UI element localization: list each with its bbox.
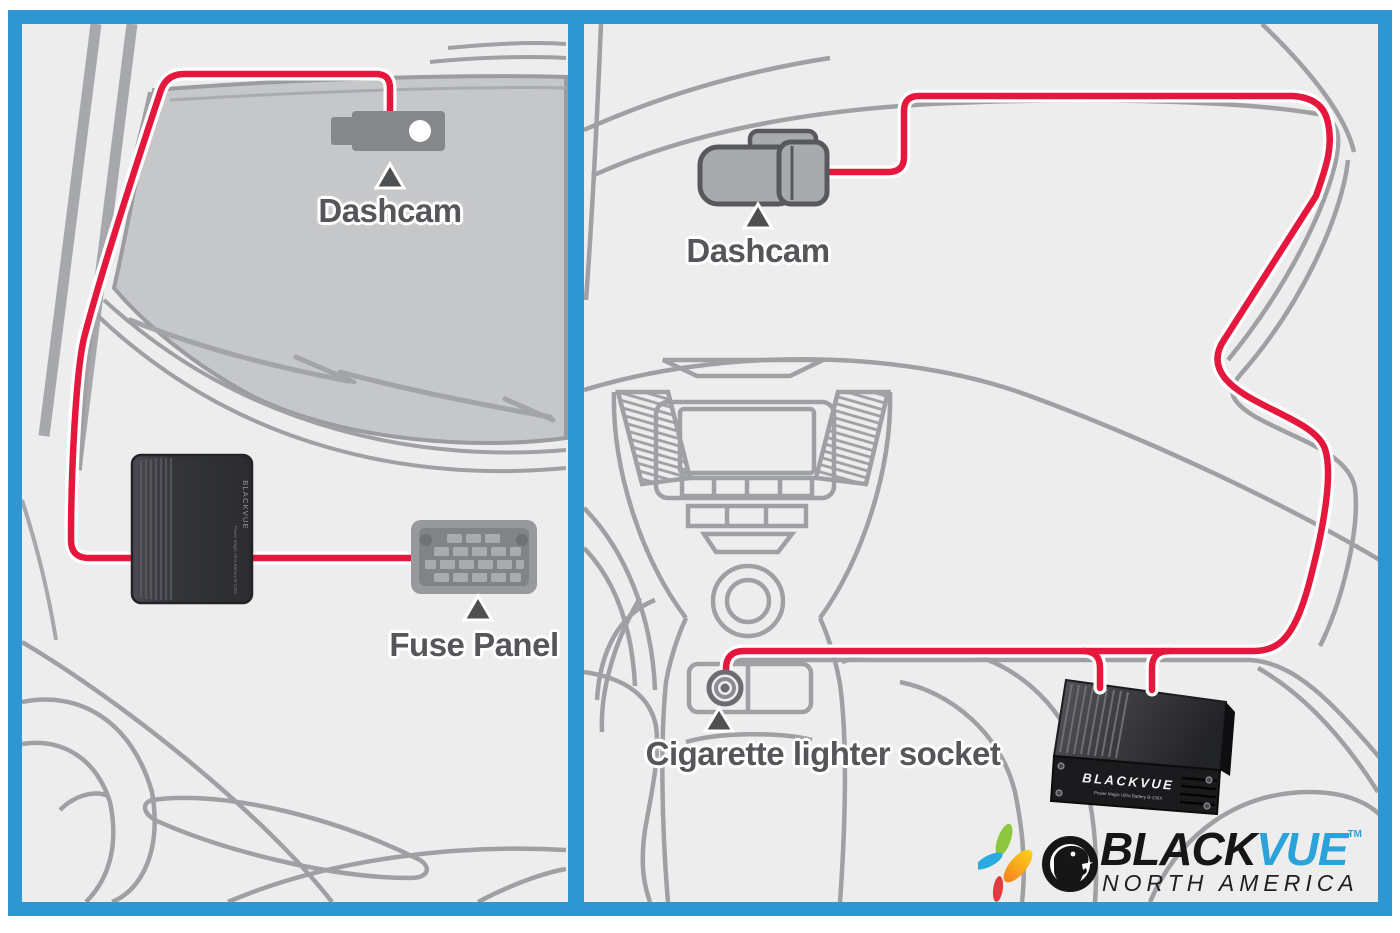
logo-trademark: TM: [1348, 829, 1362, 840]
left-panel-artwork: BLACKVUE Power Magic Ultra Battery B-130…: [22, 24, 566, 902]
diagram-artwork: BLACKVUE Power Magic Ultra Battery B-130…: [0, 0, 1400, 933]
button-tray: [704, 534, 792, 552]
logo-emblem: [978, 820, 1098, 902]
pointer-triangle-fuse-panel: [464, 596, 492, 620]
fuse-screw: [516, 534, 528, 546]
door-armrest-line: [1258, 668, 1378, 792]
logo-wordmark: BLACKVUETM: [1100, 826, 1362, 872]
logo-black: BLACK: [1100, 823, 1256, 875]
battery-side-model: Power Magic Ultra Battery B-130X: [233, 526, 238, 595]
cigarette-lighter-socket-label: Cigarette lighter socket: [646, 735, 1001, 773]
dash-top: [584, 359, 1383, 562]
air-vent-right: [816, 392, 888, 484]
battery-pack-right: BLACKVUE Power Magic Ultra Battery B-130…: [1051, 680, 1235, 814]
battery-ridges: [141, 458, 171, 600]
pointer-triangle-dashcam-right: [744, 204, 772, 228]
fuse-panel: [411, 520, 537, 594]
battery-side-brand: BLACKVUE: [241, 480, 250, 530]
control-knob-inner: [727, 580, 769, 622]
fuse-screw: [420, 534, 432, 546]
fuse-panel-label: Fuse Panel: [389, 626, 558, 664]
cigarette-lighter-socket: [709, 672, 741, 704]
headliner-sketch: [584, 24, 1356, 646]
eagle-emblem: [1046, 840, 1094, 888]
steering-rim: [584, 508, 655, 690]
dashcam-lens-unit: [779, 142, 827, 204]
logo-vue: VUE: [1256, 823, 1348, 875]
driver-seat: [584, 672, 657, 902]
screen: [680, 409, 814, 473]
logo-leaves: [978, 822, 1037, 902]
hood-sketch: [22, 642, 566, 902]
headlight: [145, 798, 427, 878]
hood-front-edge: [478, 869, 566, 902]
fender-line: [22, 500, 56, 640]
eagle-eye: [1071, 852, 1076, 857]
left-pillar-line: [586, 24, 601, 300]
roof-corner-line: [1262, 24, 1354, 152]
blackvue-north-america-logo: BLACKVUETM NORTH AMERICA: [978, 820, 1378, 902]
leaf-red: [991, 875, 1004, 902]
headliner-edge: [592, 100, 1338, 360]
dashcam-label-left: Dashcam: [318, 192, 461, 230]
hood-front-edge: [228, 849, 566, 902]
dashcam-device-left: [331, 111, 445, 151]
installation-diagram: BLACKVUE Power Magic Ultra Battery B-130…: [0, 0, 1400, 933]
mirror-line: [60, 794, 108, 810]
wheel-arch: [22, 700, 155, 902]
dashcam-device-right: [700, 131, 827, 204]
roof-line: [448, 43, 566, 48]
logo-subtitle: NORTH AMERICA: [1102, 870, 1359, 897]
socket-center: [721, 684, 730, 693]
dashcam-lens: [409, 120, 431, 142]
battery-pack-left: BLACKVUE Power Magic Ultra Battery B-130…: [132, 455, 252, 603]
roof-line: [430, 57, 566, 62]
dashcam-label-right: Dashcam: [686, 232, 829, 270]
control-knob: [713, 566, 783, 636]
dashcam-body: [352, 111, 445, 151]
roof-lines: [430, 43, 566, 62]
wheel-arch-inner: [22, 743, 113, 902]
button-row-2: [688, 506, 806, 526]
